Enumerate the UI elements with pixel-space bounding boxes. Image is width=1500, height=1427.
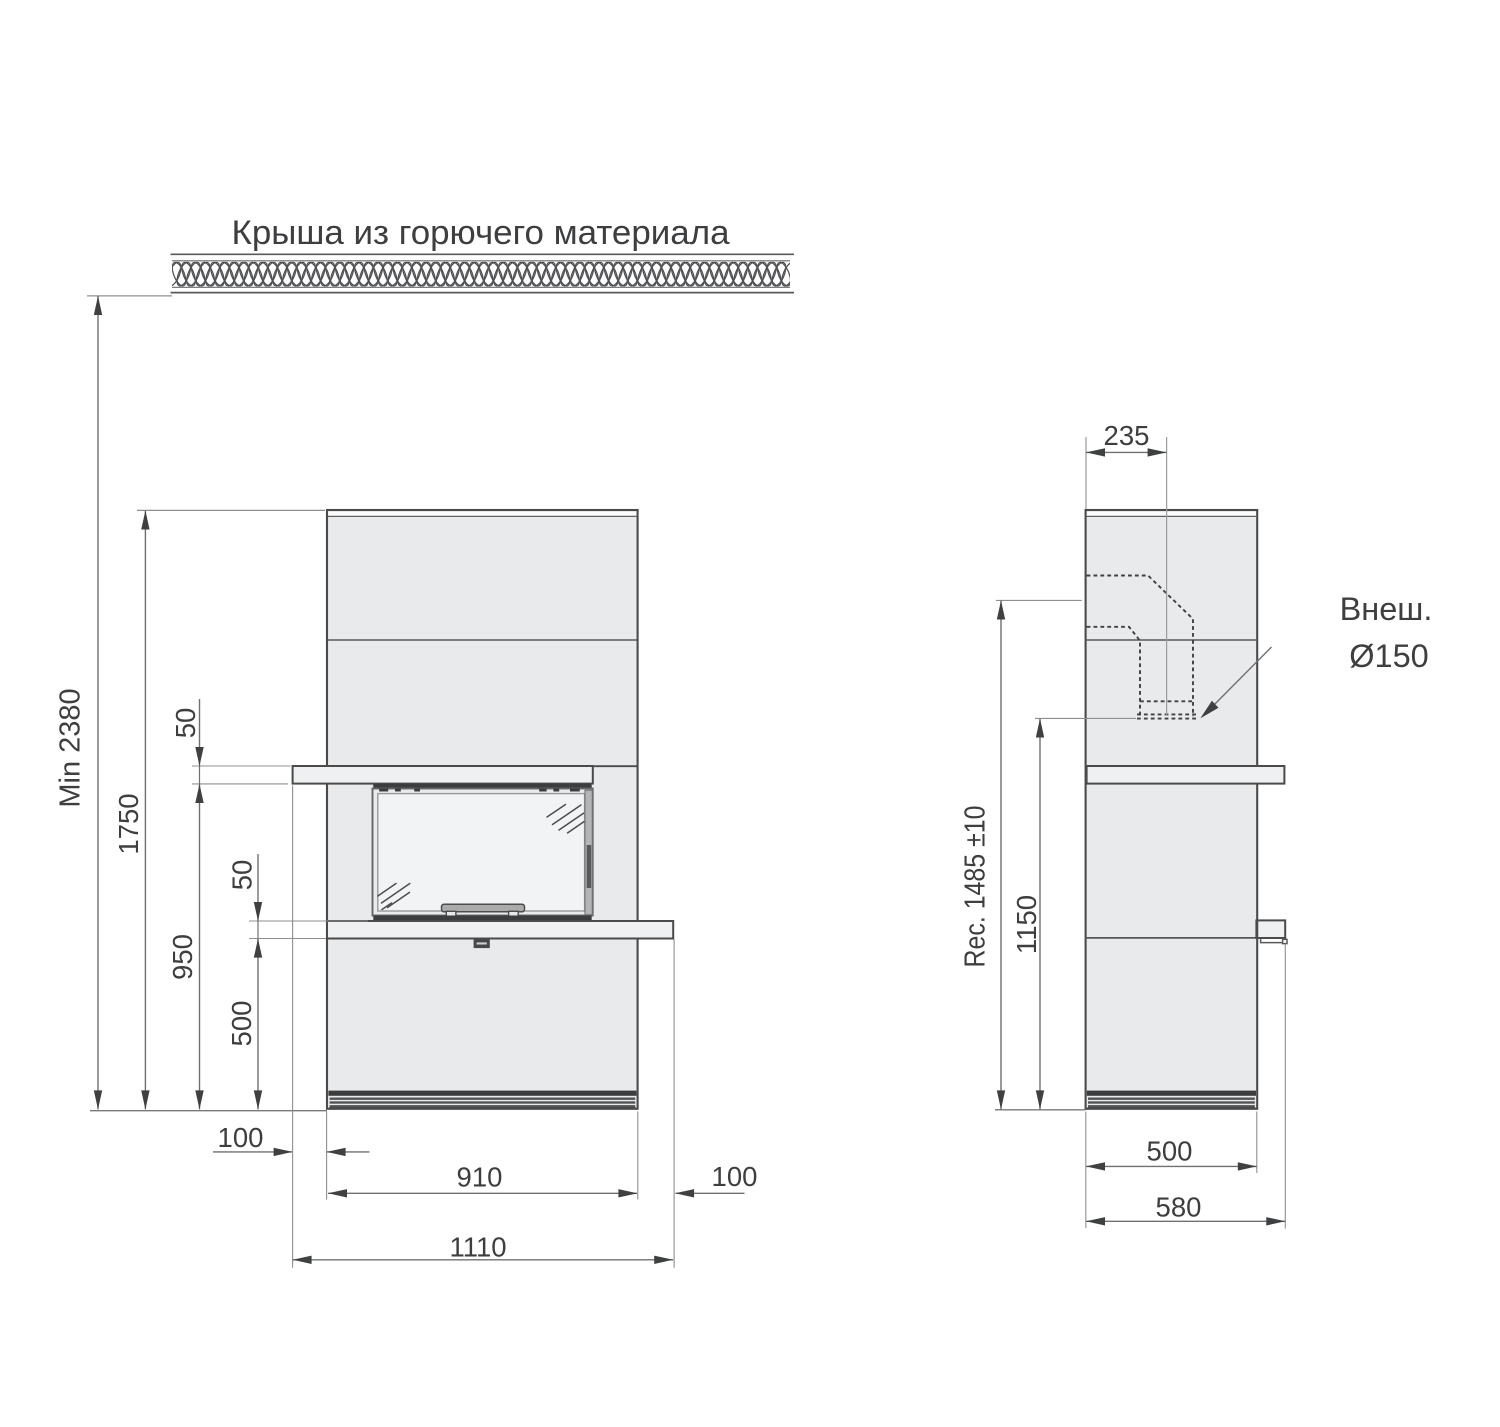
svg-text:500: 500 xyxy=(1147,1136,1193,1167)
svg-text:910: 910 xyxy=(457,1162,503,1193)
svg-text:100: 100 xyxy=(218,1122,264,1153)
svg-text:235: 235 xyxy=(1104,420,1150,451)
svg-text:50: 50 xyxy=(227,860,258,891)
svg-text:500: 500 xyxy=(226,1001,257,1047)
svg-text:1750: 1750 xyxy=(113,793,144,854)
svg-text:Min 2380: Min 2380 xyxy=(55,688,87,807)
svg-text:Внеш.: Внеш. xyxy=(1340,591,1433,627)
svg-text:580: 580 xyxy=(1156,1192,1202,1223)
svg-text:1150: 1150 xyxy=(1011,895,1042,954)
svg-text:100: 100 xyxy=(712,1161,758,1192)
svg-text:Ø150: Ø150 xyxy=(1349,638,1429,674)
svg-text:Крыша из горючего материала: Крыша из горючего материала xyxy=(232,214,731,252)
svg-text:50: 50 xyxy=(170,708,201,739)
svg-text:1110: 1110 xyxy=(449,1232,506,1263)
svg-text:950: 950 xyxy=(167,934,198,980)
svg-text:Rec. 1485 ±10: Rec. 1485 ±10 xyxy=(960,806,992,968)
